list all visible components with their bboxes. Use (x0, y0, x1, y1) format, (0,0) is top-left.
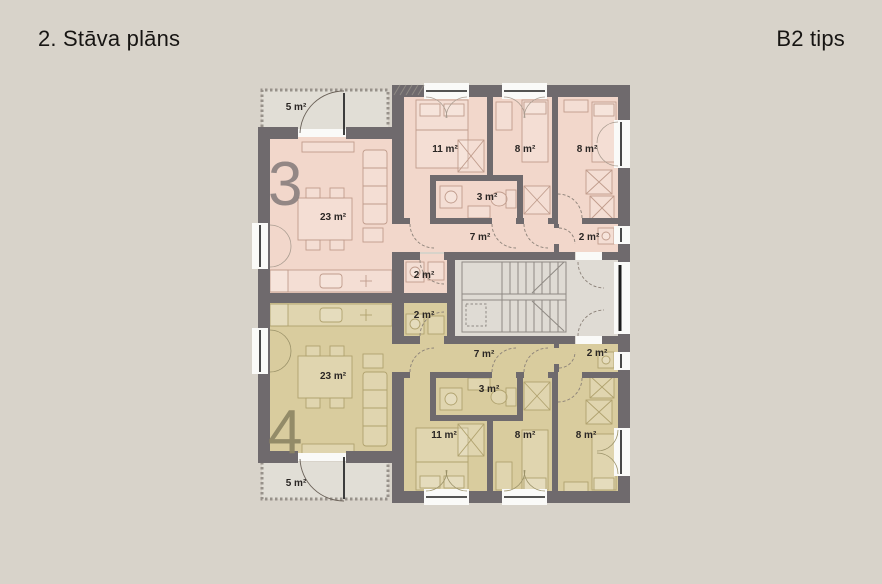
label-bedroom-mid-4: 8 m² (515, 430, 536, 441)
label-hall-4: 7 m² (474, 349, 495, 360)
label-bedroom-large-4: 11 m² (431, 430, 457, 441)
label-bedroom-right-4: 8 m² (576, 430, 597, 441)
label-bathroom-3: 3 m² (477, 192, 498, 203)
floor-plan: 3 4 5 m² 23 m² 11 m² 8 m² 8 m² 3 m² 7 m²… (0, 0, 882, 579)
label-bedroom-large-3: 11 m² (432, 144, 458, 155)
label-utility-4: 2 m² (414, 310, 435, 321)
label-balcony-3: 5 m² (286, 102, 307, 113)
label-bedroom-right-3: 8 m² (577, 144, 598, 155)
label-bedroom-mid-3: 8 m² (515, 144, 536, 155)
label-wc-4: 2 m² (587, 348, 608, 359)
plan-type-label: B2 tips (776, 26, 845, 52)
window (614, 428, 630, 476)
apartment-door-threshold (576, 252, 602, 260)
apartment-door-threshold (576, 336, 602, 344)
balcony-bottom-floor (262, 462, 388, 499)
label-wc-3: 2 m² (579, 232, 600, 243)
label-hall-3: 7 m² (470, 232, 491, 243)
window (614, 352, 630, 370)
balcony-door-threshold (298, 129, 346, 137)
label-living-4: 23 m² (320, 371, 347, 382)
apartment-3-number: 3 (268, 150, 302, 219)
label-utility-3: 2 m² (414, 270, 435, 281)
page: 2. Stāva plāns B2 tips (0, 0, 882, 579)
window (614, 120, 630, 168)
window (614, 226, 630, 244)
label-bathroom-4: 3 m² (479, 384, 500, 395)
balcony-door-threshold (298, 453, 346, 461)
page-title: 2. Stāva plāns (38, 26, 180, 52)
entrance-glazing (614, 262, 630, 334)
apartment-4-number: 4 (268, 398, 302, 467)
label-living-3: 23 m² (320, 212, 347, 223)
label-balcony-4: 5 m² (286, 478, 307, 489)
